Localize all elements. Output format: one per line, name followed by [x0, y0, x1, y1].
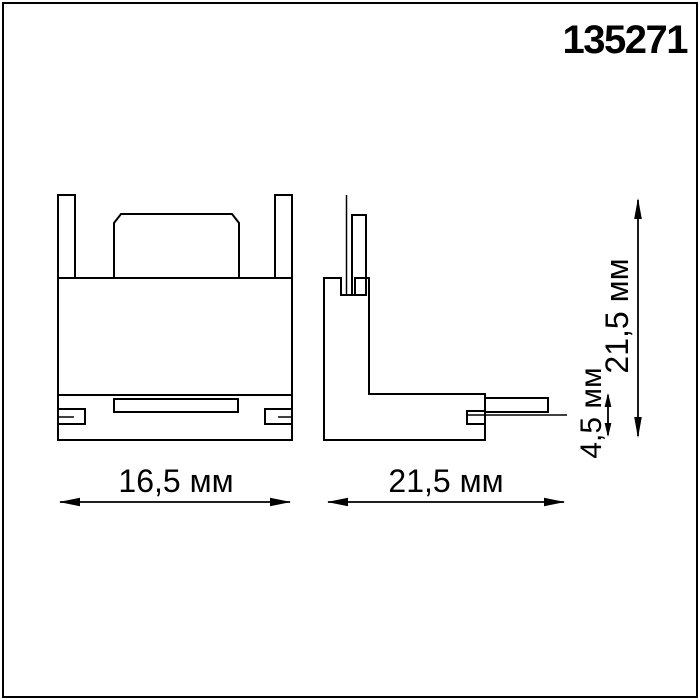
side-view — [324, 195, 567, 440]
arrowhead-down-icon — [634, 417, 642, 438]
front-view — [58, 195, 292, 440]
arrowhead-right-icon — [544, 498, 565, 506]
article-number: 135271 — [563, 18, 689, 62]
front-center-slot — [114, 399, 238, 412]
front-right-prong — [275, 195, 292, 278]
arrowhead-left-icon — [59, 498, 80, 506]
technical-drawing-page: 135271 16,5 — [0, 0, 700, 700]
front-left-prong — [58, 195, 75, 278]
arrowhead-left-icon — [327, 498, 348, 506]
front-width-label: 16,5 мм — [118, 463, 233, 499]
side-l-body — [324, 278, 485, 440]
arrowhead-right-icon — [270, 498, 291, 506]
side-tongue — [485, 398, 548, 412]
front-top-boss — [114, 214, 239, 278]
side-clip — [467, 411, 485, 424]
front-body — [58, 278, 292, 440]
tongue-thickness-label: 4,5 мм — [575, 367, 608, 458]
connector-dimension-drawing: 135271 16,5 — [0, 0, 700, 700]
side-width-label: 21,5 мм — [388, 463, 503, 499]
dimension-annotations: 16,5 мм 21,5 мм 21,5 мм 4,5 мм — [59, 198, 642, 506]
arrowhead-up-icon — [634, 198, 642, 219]
side-height-label: 21,5 мм — [599, 258, 635, 373]
